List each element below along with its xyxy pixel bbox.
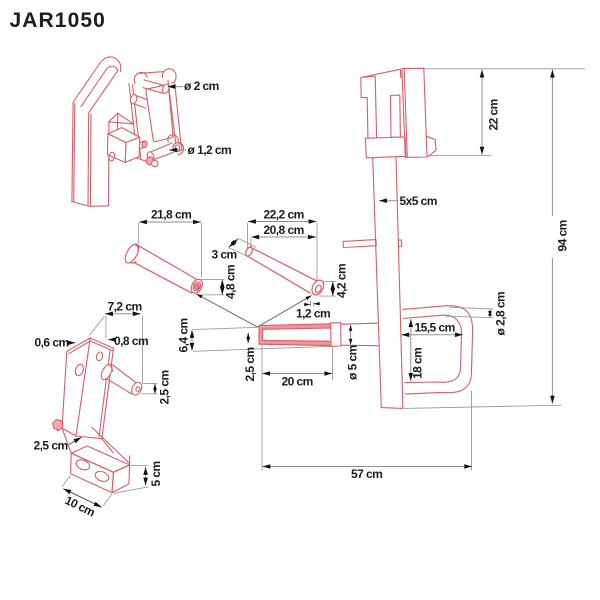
svg-text:ø 5 cm: ø 5 cm: [346, 345, 360, 380]
svg-text:22,2 cm: 22,2 cm: [264, 208, 304, 222]
svg-text:4,2 cm: 4,2 cm: [335, 264, 349, 298]
svg-text:5 cm: 5 cm: [149, 461, 163, 486]
svg-text:JAR1050: JAR1050: [10, 9, 106, 32]
svg-text:ø 2 cm: ø 2 cm: [184, 79, 219, 93]
svg-text:5x5 cm: 5x5 cm: [400, 194, 437, 208]
svg-text:2,5 cm: 2,5 cm: [243, 347, 257, 381]
svg-text:22 cm: 22 cm: [487, 99, 501, 130]
svg-text:ø 1,2 cm: ø 1,2 cm: [188, 143, 232, 157]
svg-text:0,8 cm: 0,8 cm: [114, 334, 148, 348]
svg-text:2,5 cm: 2,5 cm: [34, 439, 68, 453]
svg-text:6,4 cm: 6,4 cm: [177, 318, 191, 352]
svg-text:57 cm: 57 cm: [351, 467, 382, 481]
svg-text:20 cm: 20 cm: [282, 375, 313, 389]
svg-text:1,2 cm: 1,2 cm: [296, 307, 330, 321]
svg-text:7,2 cm: 7,2 cm: [108, 300, 142, 314]
svg-text:2,5 cm: 2,5 cm: [158, 370, 172, 404]
svg-text:21,8 cm: 21,8 cm: [151, 208, 191, 222]
svg-text:94 cm: 94 cm: [556, 220, 570, 251]
svg-text:20,8 cm: 20,8 cm: [264, 223, 304, 237]
svg-text:0,6 cm: 0,6 cm: [35, 336, 69, 350]
svg-text:4,8 cm: 4,8 cm: [224, 265, 238, 299]
svg-text:18 cm: 18 cm: [411, 348, 425, 379]
svg-text:15,5 cm: 15,5 cm: [415, 321, 455, 335]
svg-text:ø 2,8 cm: ø 2,8 cm: [494, 292, 508, 336]
svg-text:3 cm: 3 cm: [212, 248, 237, 262]
